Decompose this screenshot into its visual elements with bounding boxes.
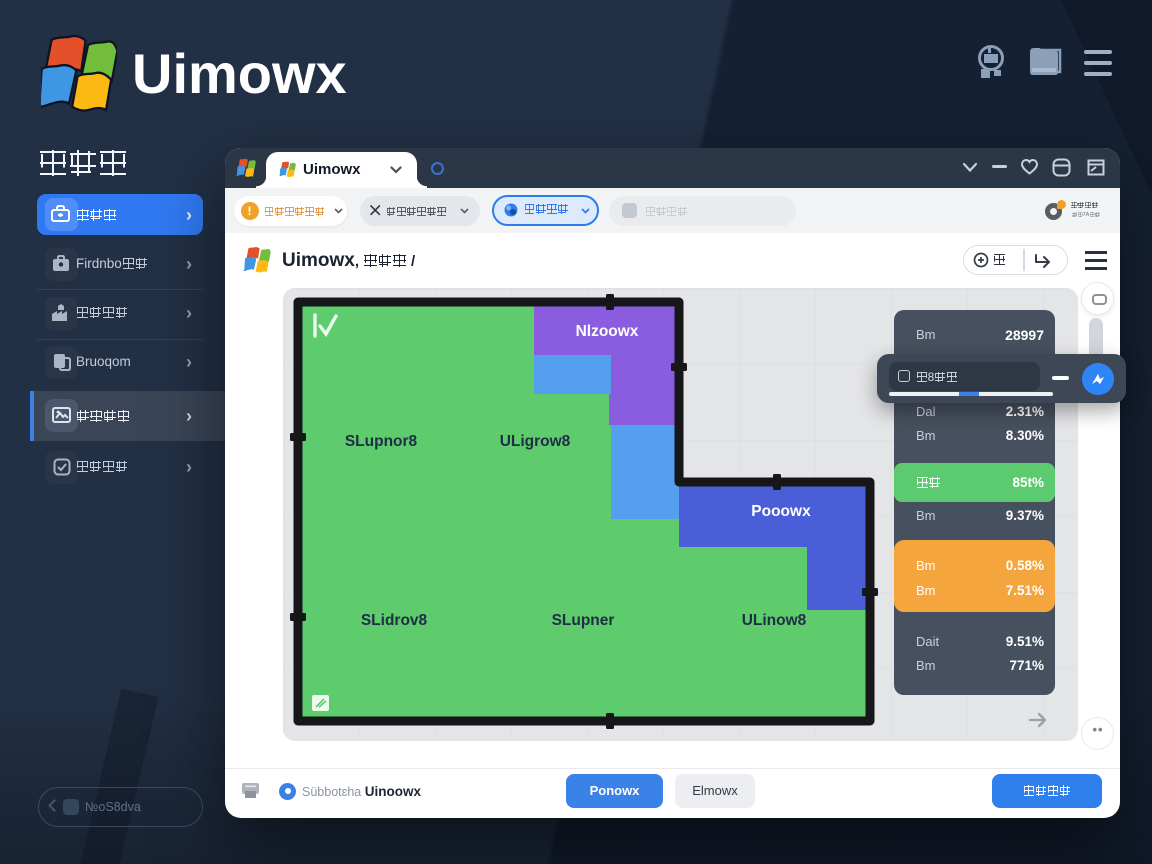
svg-text:SLupnor8: SLupnor8: [345, 433, 418, 450]
svg-text:SLidrov8: SLidrov8: [361, 612, 428, 629]
svg-text:ULigrow8: ULigrow8: [500, 433, 571, 450]
svg-text:Nlzoowx: Nlzoowx: [576, 323, 639, 340]
svg-text:SLupner: SLupner: [552, 612, 615, 629]
svg-text:Pooowx: Pooowx: [751, 503, 811, 520]
svg-text:ULinow8: ULinow8: [742, 612, 807, 629]
